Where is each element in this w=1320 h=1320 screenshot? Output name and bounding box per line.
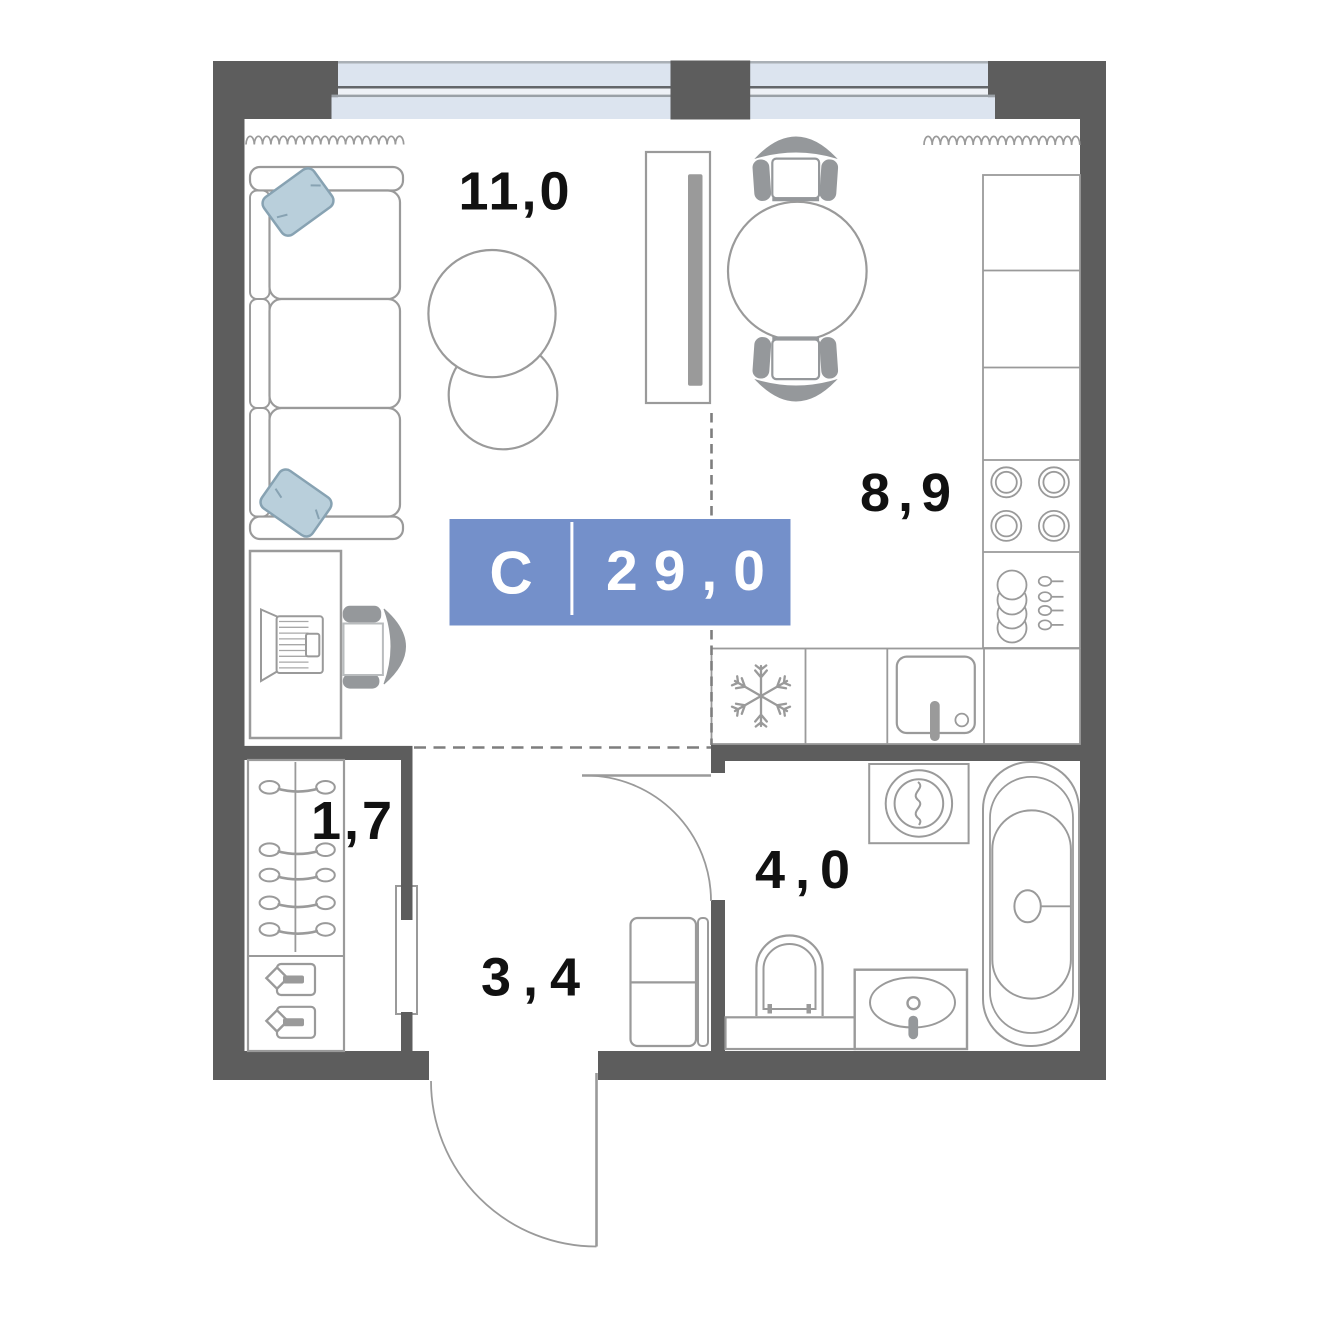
- svg-text:3,4: 3,4: [481, 948, 592, 1008]
- svg-text:8,9: 8,9: [860, 463, 959, 523]
- svg-text:1,7: 1,7: [311, 791, 395, 851]
- svg-text:29,0: 29,0: [606, 539, 781, 603]
- svg-text:4,0: 4,0: [755, 840, 860, 900]
- svg-text:11,0: 11,0: [458, 162, 572, 222]
- svg-text:С: С: [489, 540, 532, 607]
